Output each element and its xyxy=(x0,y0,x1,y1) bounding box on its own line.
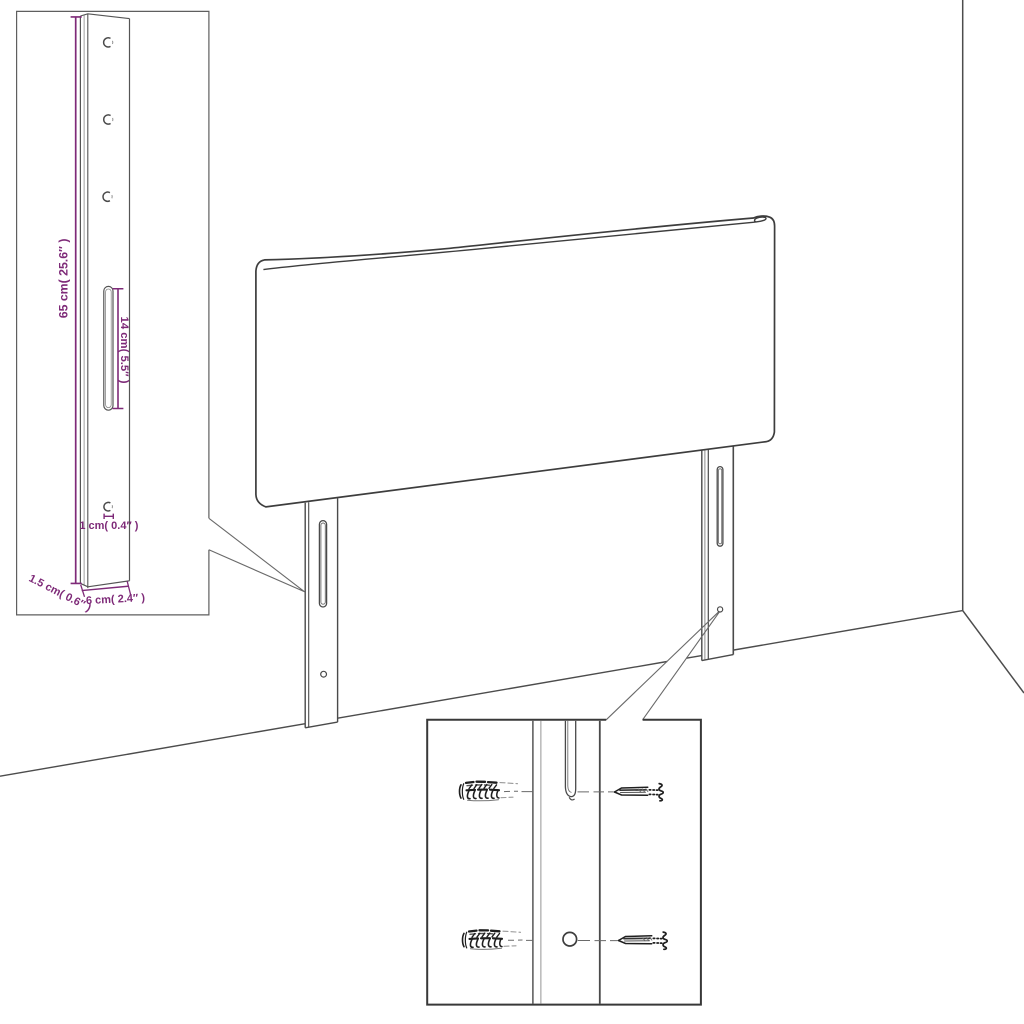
svg-text:65 cm( 25.6″ ): 65 cm( 25.6″ ) xyxy=(56,239,70,319)
svg-text:14 cm( 5.5″ ): 14 cm( 5.5″ ) xyxy=(118,317,130,384)
svg-text:1 cm( 0.4″ ): 1 cm( 0.4″ ) xyxy=(79,520,138,532)
